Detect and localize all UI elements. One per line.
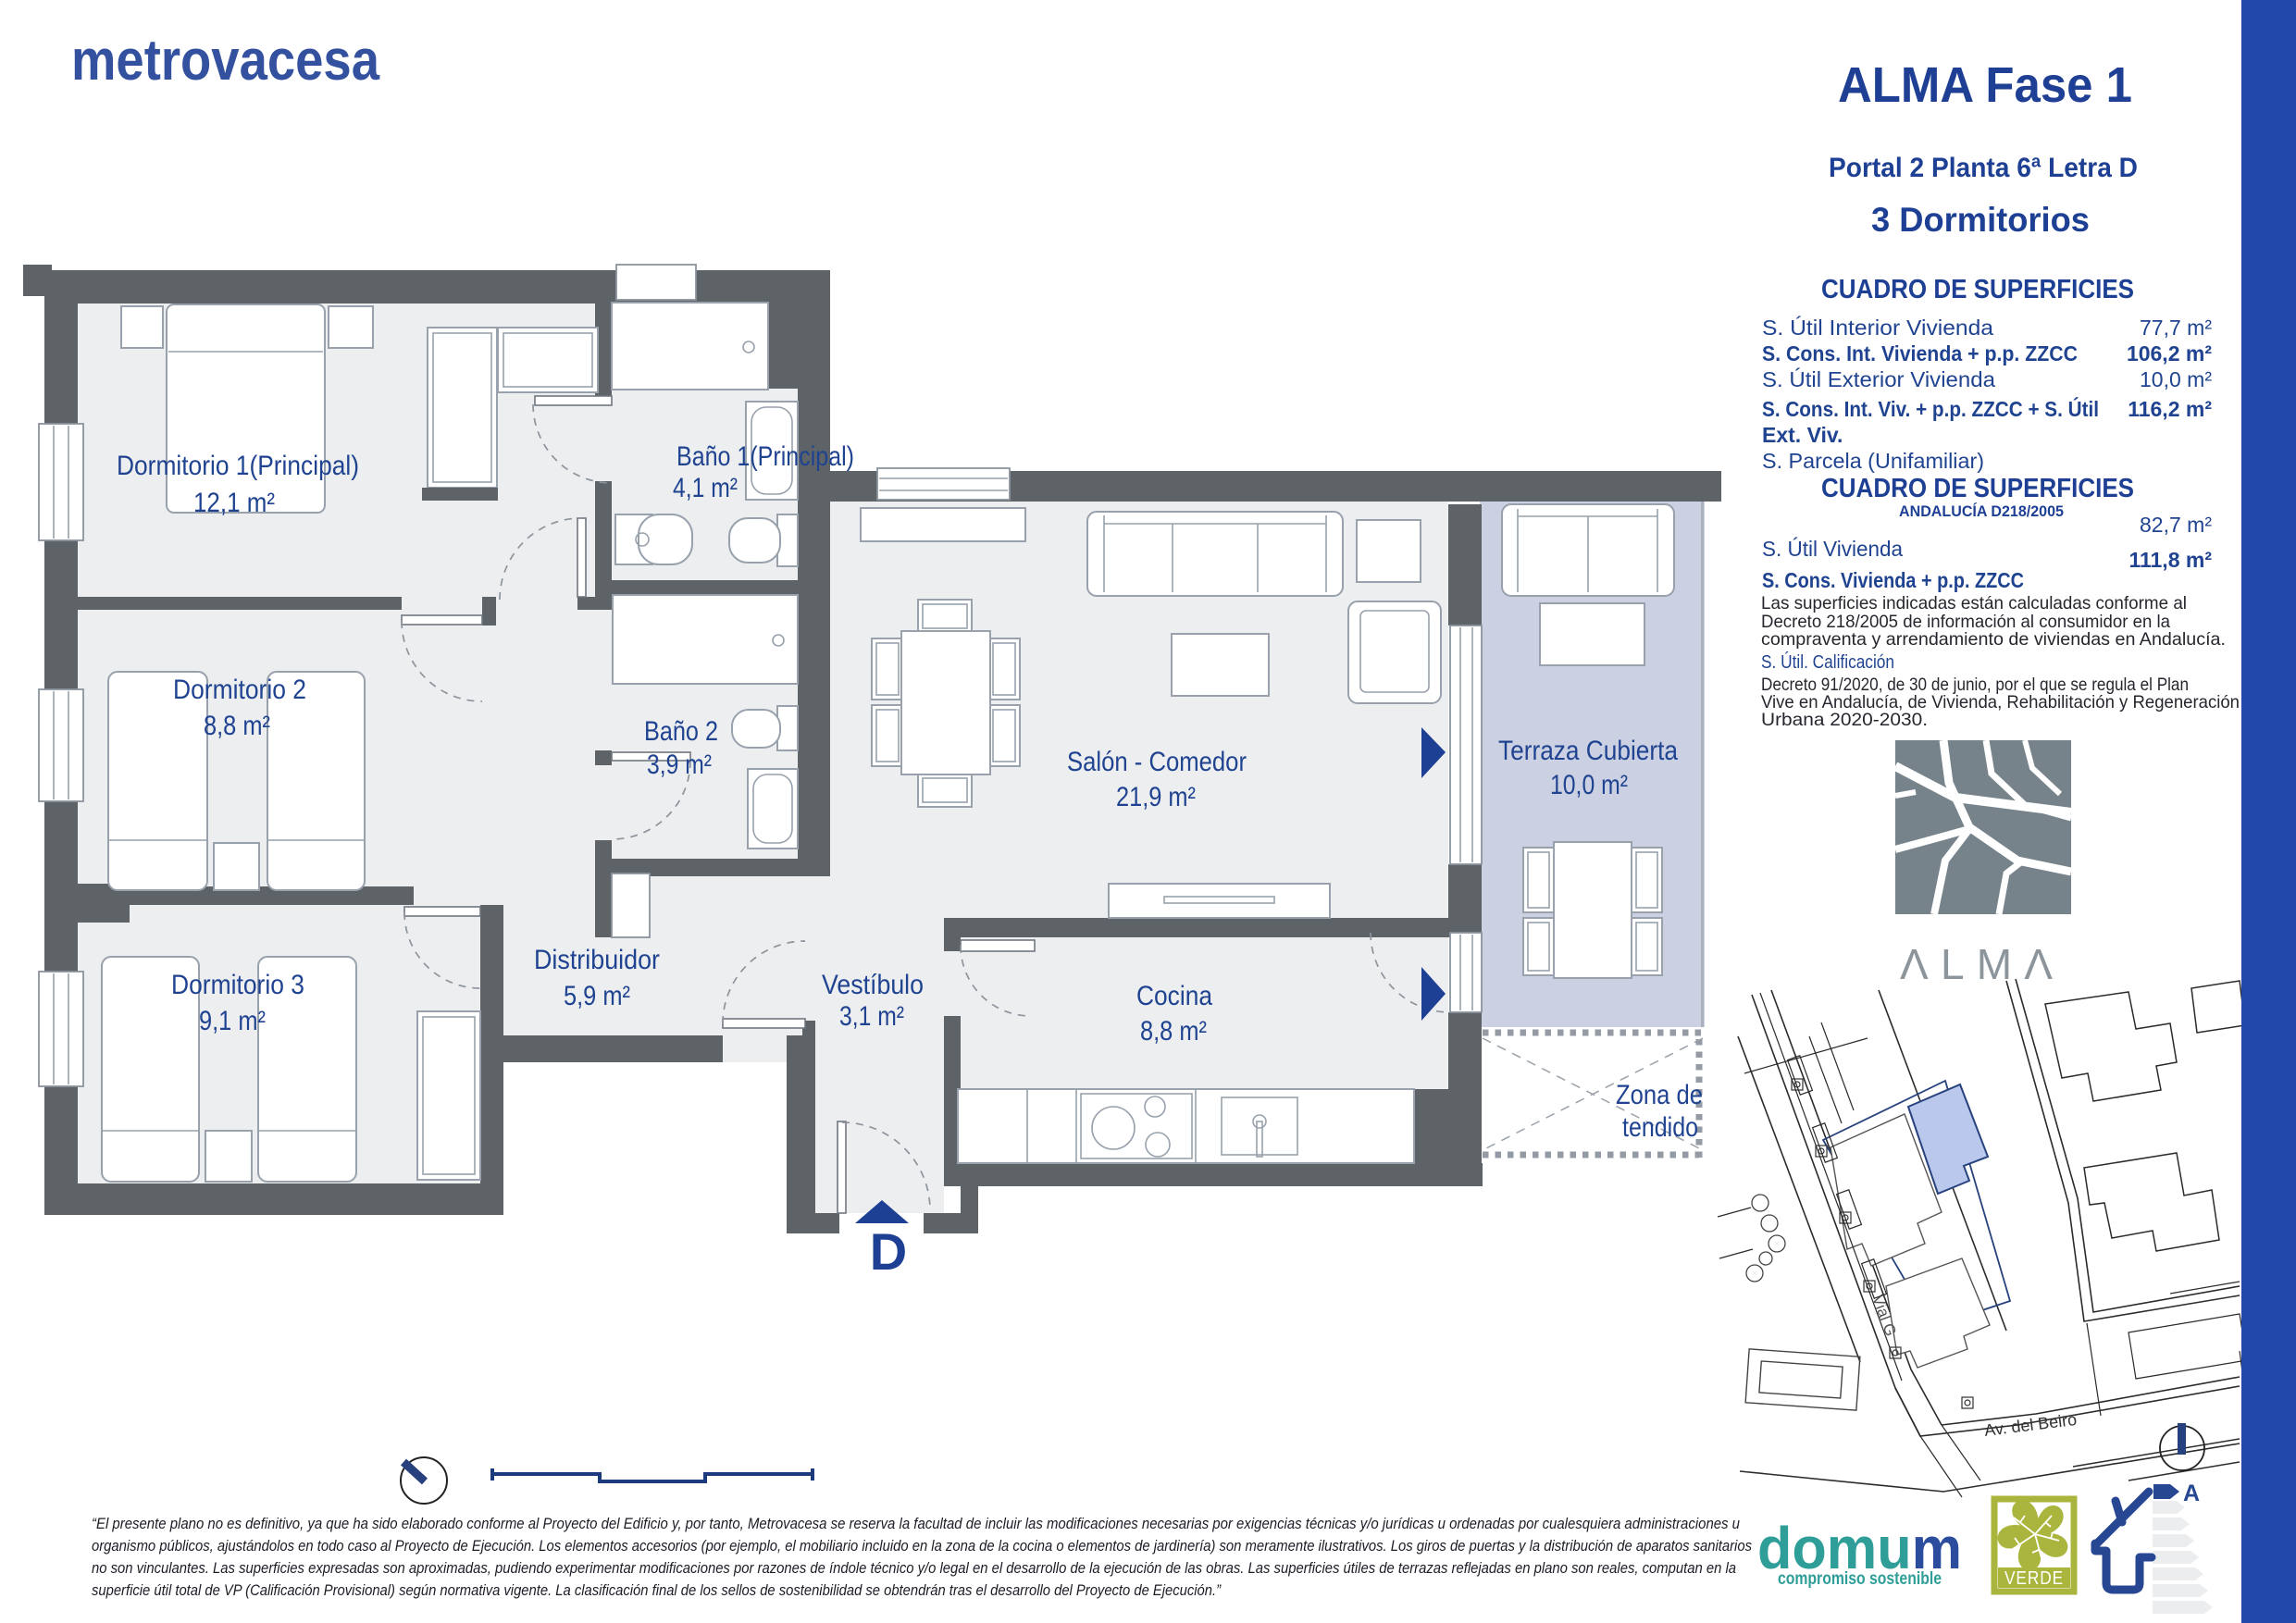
svg-text:tendido: tendido	[1622, 1112, 1698, 1143]
svg-text:S. Útil Exterior Vivienda: S. Útil Exterior Vivienda	[1762, 367, 1995, 391]
svg-text:3,9 m²: 3,9 m²	[647, 750, 712, 780]
svg-text:Vestíbulo: Vestíbulo	[822, 970, 924, 1000]
svg-text:116,2 m²: 116,2 m²	[2128, 397, 2212, 421]
svg-text:Salón - Comedor: Salón - Comedor	[1067, 747, 1247, 777]
svg-text:S. Cons. Int. Vivienda + p.p.: S. Cons. Int. Vivienda + p.p. ZZCC	[1762, 341, 2078, 365]
svg-text:9,1 m²: 9,1 m²	[199, 1006, 266, 1036]
svg-text:S. Cons. Vivienda + p.p. ZZCC: S. Cons. Vivienda + p.p. ZZCC	[1762, 568, 2024, 592]
svg-text:82,7 m²: 82,7 m²	[2140, 513, 2212, 537]
svg-text:S. Útil. Calificación: S. Útil. Calificación	[1761, 651, 1894, 673]
svg-text:Ext. Viv.: Ext. Viv.	[1762, 423, 1843, 447]
svg-text:3,1 m²: 3,1 m²	[839, 1001, 904, 1032]
svg-text:no son vinculantes. Las superf: no son vinculantes. Las superficies expr…	[92, 1559, 1736, 1577]
svg-text:ΛLMΛ: ΛLMΛ	[1900, 940, 2067, 988]
svg-text:77,7 m²: 77,7 m²	[2140, 316, 2212, 340]
svg-text:VERDE: VERDE	[2004, 1568, 2064, 1589]
svg-text:10,0 m²: 10,0 m²	[2140, 367, 2212, 391]
svg-text:Dormitorio 1(Principal): Dormitorio 1(Principal)	[117, 451, 359, 481]
svg-text:12,1 m²: 12,1 m²	[193, 488, 275, 518]
svg-text:Las superficies indicadas está: Las superficies indicadas están calculad…	[1761, 593, 2187, 613]
svg-text:Baño 1(Principal): Baño 1(Principal)	[676, 441, 854, 472]
svg-text:Dormitorio 2: Dormitorio 2	[173, 675, 306, 705]
svg-text:S. Parcela (Unifamiliar): S. Parcela (Unifamiliar)	[1762, 449, 1984, 473]
svg-text:3 Dormitorios: 3 Dormitorios	[1871, 201, 2090, 239]
svg-text:111,8 m²: 111,8 m²	[2128, 548, 2212, 572]
svg-text:8,8 m²: 8,8 m²	[204, 711, 270, 741]
svg-text:10,0 m²: 10,0 m²	[1550, 770, 1628, 800]
svg-text:“El presente plano no es defin: “El presente plano no es definitivo, ya …	[92, 1515, 1740, 1532]
svg-text:21,9 m²: 21,9 m²	[1116, 782, 1196, 812]
svg-text:5,9 m²: 5,9 m²	[564, 981, 630, 1011]
svg-text:Terraza Cubierta: Terraza Cubierta	[1498, 736, 1678, 766]
svg-text:S. Cons. Int. Viv. + p.p. ZZCC: S. Cons. Int. Viv. + p.p. ZZCC + S. Útil	[1762, 396, 2099, 421]
svg-text:Dormitorio 3: Dormitorio 3	[171, 970, 304, 1000]
svg-text:ALMA Fase 1: ALMA Fase 1	[1838, 57, 2132, 113]
svg-text:A: A	[2183, 1481, 2200, 1506]
svg-text:D: D	[870, 1222, 907, 1281]
svg-text:106,2 m²: 106,2 m²	[2127, 341, 2212, 365]
svg-text:4,1 m²: 4,1 m²	[673, 473, 738, 503]
svg-text:compraventa y arrendamiento de: compraventa y arrendamiento de viviendas…	[1761, 629, 2226, 650]
svg-text:8,8 m²: 8,8 m²	[1140, 1016, 1207, 1047]
svg-text:ANDALUCÍA D218/2005: ANDALUCÍA D218/2005	[1899, 502, 2064, 520]
svg-text:S. Útil Interior Vivienda: S. Útil Interior Vivienda	[1762, 316, 1993, 340]
svg-text:Distribuidor: Distribuidor	[534, 945, 660, 975]
svg-text:CUADRO DE SUPERFICIES: CUADRO DE SUPERFICIES	[1821, 275, 2134, 304]
svg-text:Urbana 2020-2030.: Urbana 2020-2030.	[1761, 710, 1928, 730]
svg-text:metrovacesa: metrovacesa	[71, 29, 379, 93]
svg-text:superficie útil total de VP (C: superficie útil total de VP (Calificació…	[92, 1581, 1222, 1599]
svg-text:Zona de: Zona de	[1616, 1080, 1703, 1110]
svg-text:compromiso sostenible: compromiso sostenible	[1778, 1569, 1942, 1589]
svg-text:S. Útil Vivienda: S. Útil Vivienda	[1762, 537, 1903, 561]
svg-text:Baño 2: Baño 2	[644, 716, 718, 747]
svg-text:Cocina: Cocina	[1136, 981, 1212, 1011]
svg-text:CUADRO DE SUPERFICIES: CUADRO DE SUPERFICIES	[1821, 474, 2134, 503]
svg-text:organismo públicos, ajustándol: organismo públicos, ajustándolos en todo…	[92, 1537, 1753, 1555]
svg-text:Portal 2 Planta 6ª Letra D: Portal 2 Planta 6ª Letra D	[1829, 153, 2138, 183]
